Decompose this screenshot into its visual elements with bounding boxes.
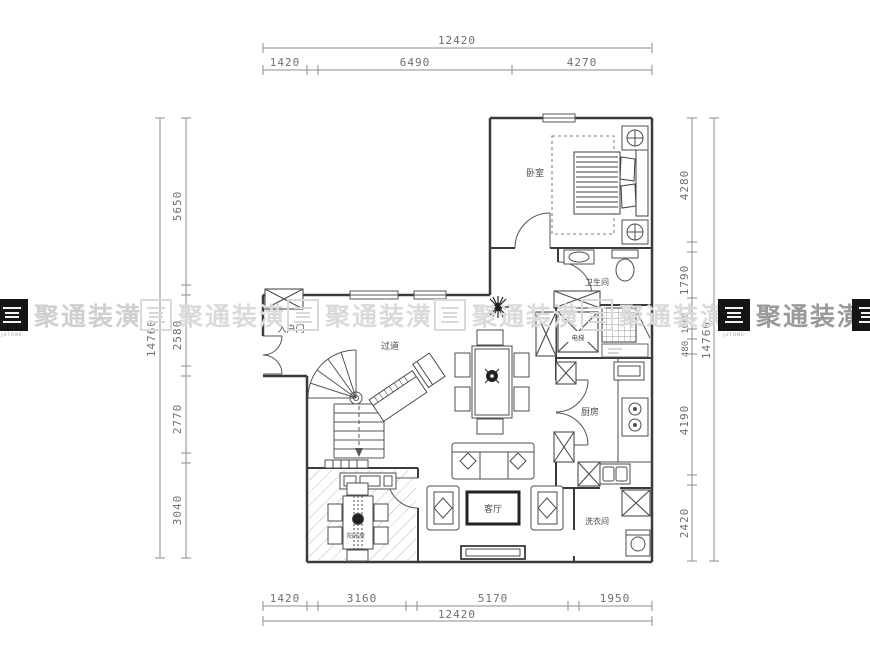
tv-cabinet [461, 546, 525, 559]
plant-icon [487, 296, 509, 318]
dim-right-seg6: 2420 [678, 508, 691, 539]
washing-machine-icon [626, 530, 650, 556]
room-label-bathroom: 卫生间 [585, 277, 609, 287]
stove-icon [622, 398, 648, 436]
dim-bottom-seg3: 5170 [478, 592, 509, 605]
dim-right-seg5: 4190 [678, 405, 691, 436]
room-label-laundry: 洗衣间 [585, 516, 609, 526]
shower-tile-area [602, 308, 650, 357]
dim-right-seg2: 1790 [678, 265, 691, 296]
dim-left-seg4: 3040 [171, 495, 184, 526]
floor-plan-page: 12420 1420 6490 4270 1420 3160 5170 1950… [0, 0, 870, 653]
dim-bottom-seg1: 1420 [270, 592, 301, 605]
dim-left-total: 14760 [145, 319, 158, 357]
bed [574, 150, 648, 216]
dim-top-seg1: 1420 [270, 56, 301, 69]
room-label-elevator: 电梯 [572, 333, 586, 342]
kitchen-sink-icon [600, 464, 630, 484]
dim-top-seg3: 4270 [567, 56, 598, 69]
sunroom-bench [325, 460, 368, 468]
armchair [531, 486, 563, 530]
dim-bottom-total: 12420 [438, 608, 476, 621]
piano [366, 353, 446, 421]
dim-left-seg2: 2580 [171, 320, 184, 351]
floor-plan-drawing: 12420 1420 6490 4270 1420 3160 5170 1950… [0, 0, 870, 653]
table-centerpiece-icon [485, 369, 499, 383]
dim-right-total: 14760 [700, 321, 713, 359]
room-label-entry: 入户门 [277, 323, 304, 335]
toilet-icon [612, 250, 638, 281]
armchair [427, 486, 459, 530]
dim-right-seg4: 480 [681, 341, 691, 357]
window-symbols [350, 114, 575, 299]
dim-bottom-seg2: 3160 [347, 592, 378, 605]
dim-top-total: 12420 [438, 34, 476, 47]
room-label-living: 客厅 [484, 503, 502, 515]
nightstand-icon [622, 220, 648, 244]
bathroom-sink-icon [564, 250, 594, 264]
room-label-hallway: 过道 [381, 340, 399, 352]
elevator-shaft [558, 312, 598, 352]
dim-left-seg3: 2770 [171, 404, 184, 435]
sofa [452, 443, 534, 479]
nightstand-icon [622, 126, 648, 150]
dim-bottom-seg4: 1950 [600, 592, 631, 605]
room-label-bedroom: 卧室 [526, 167, 544, 179]
dim-right-seg1: 4280 [678, 170, 691, 201]
room-label-sunroom: 阳光房 [347, 532, 365, 540]
room-label-kitchen: 厨房 [581, 406, 599, 418]
dim-right-seg3: 1000 [681, 312, 691, 334]
dim-left-seg1: 5650 [171, 191, 184, 222]
dim-top-seg2: 6490 [400, 56, 431, 69]
